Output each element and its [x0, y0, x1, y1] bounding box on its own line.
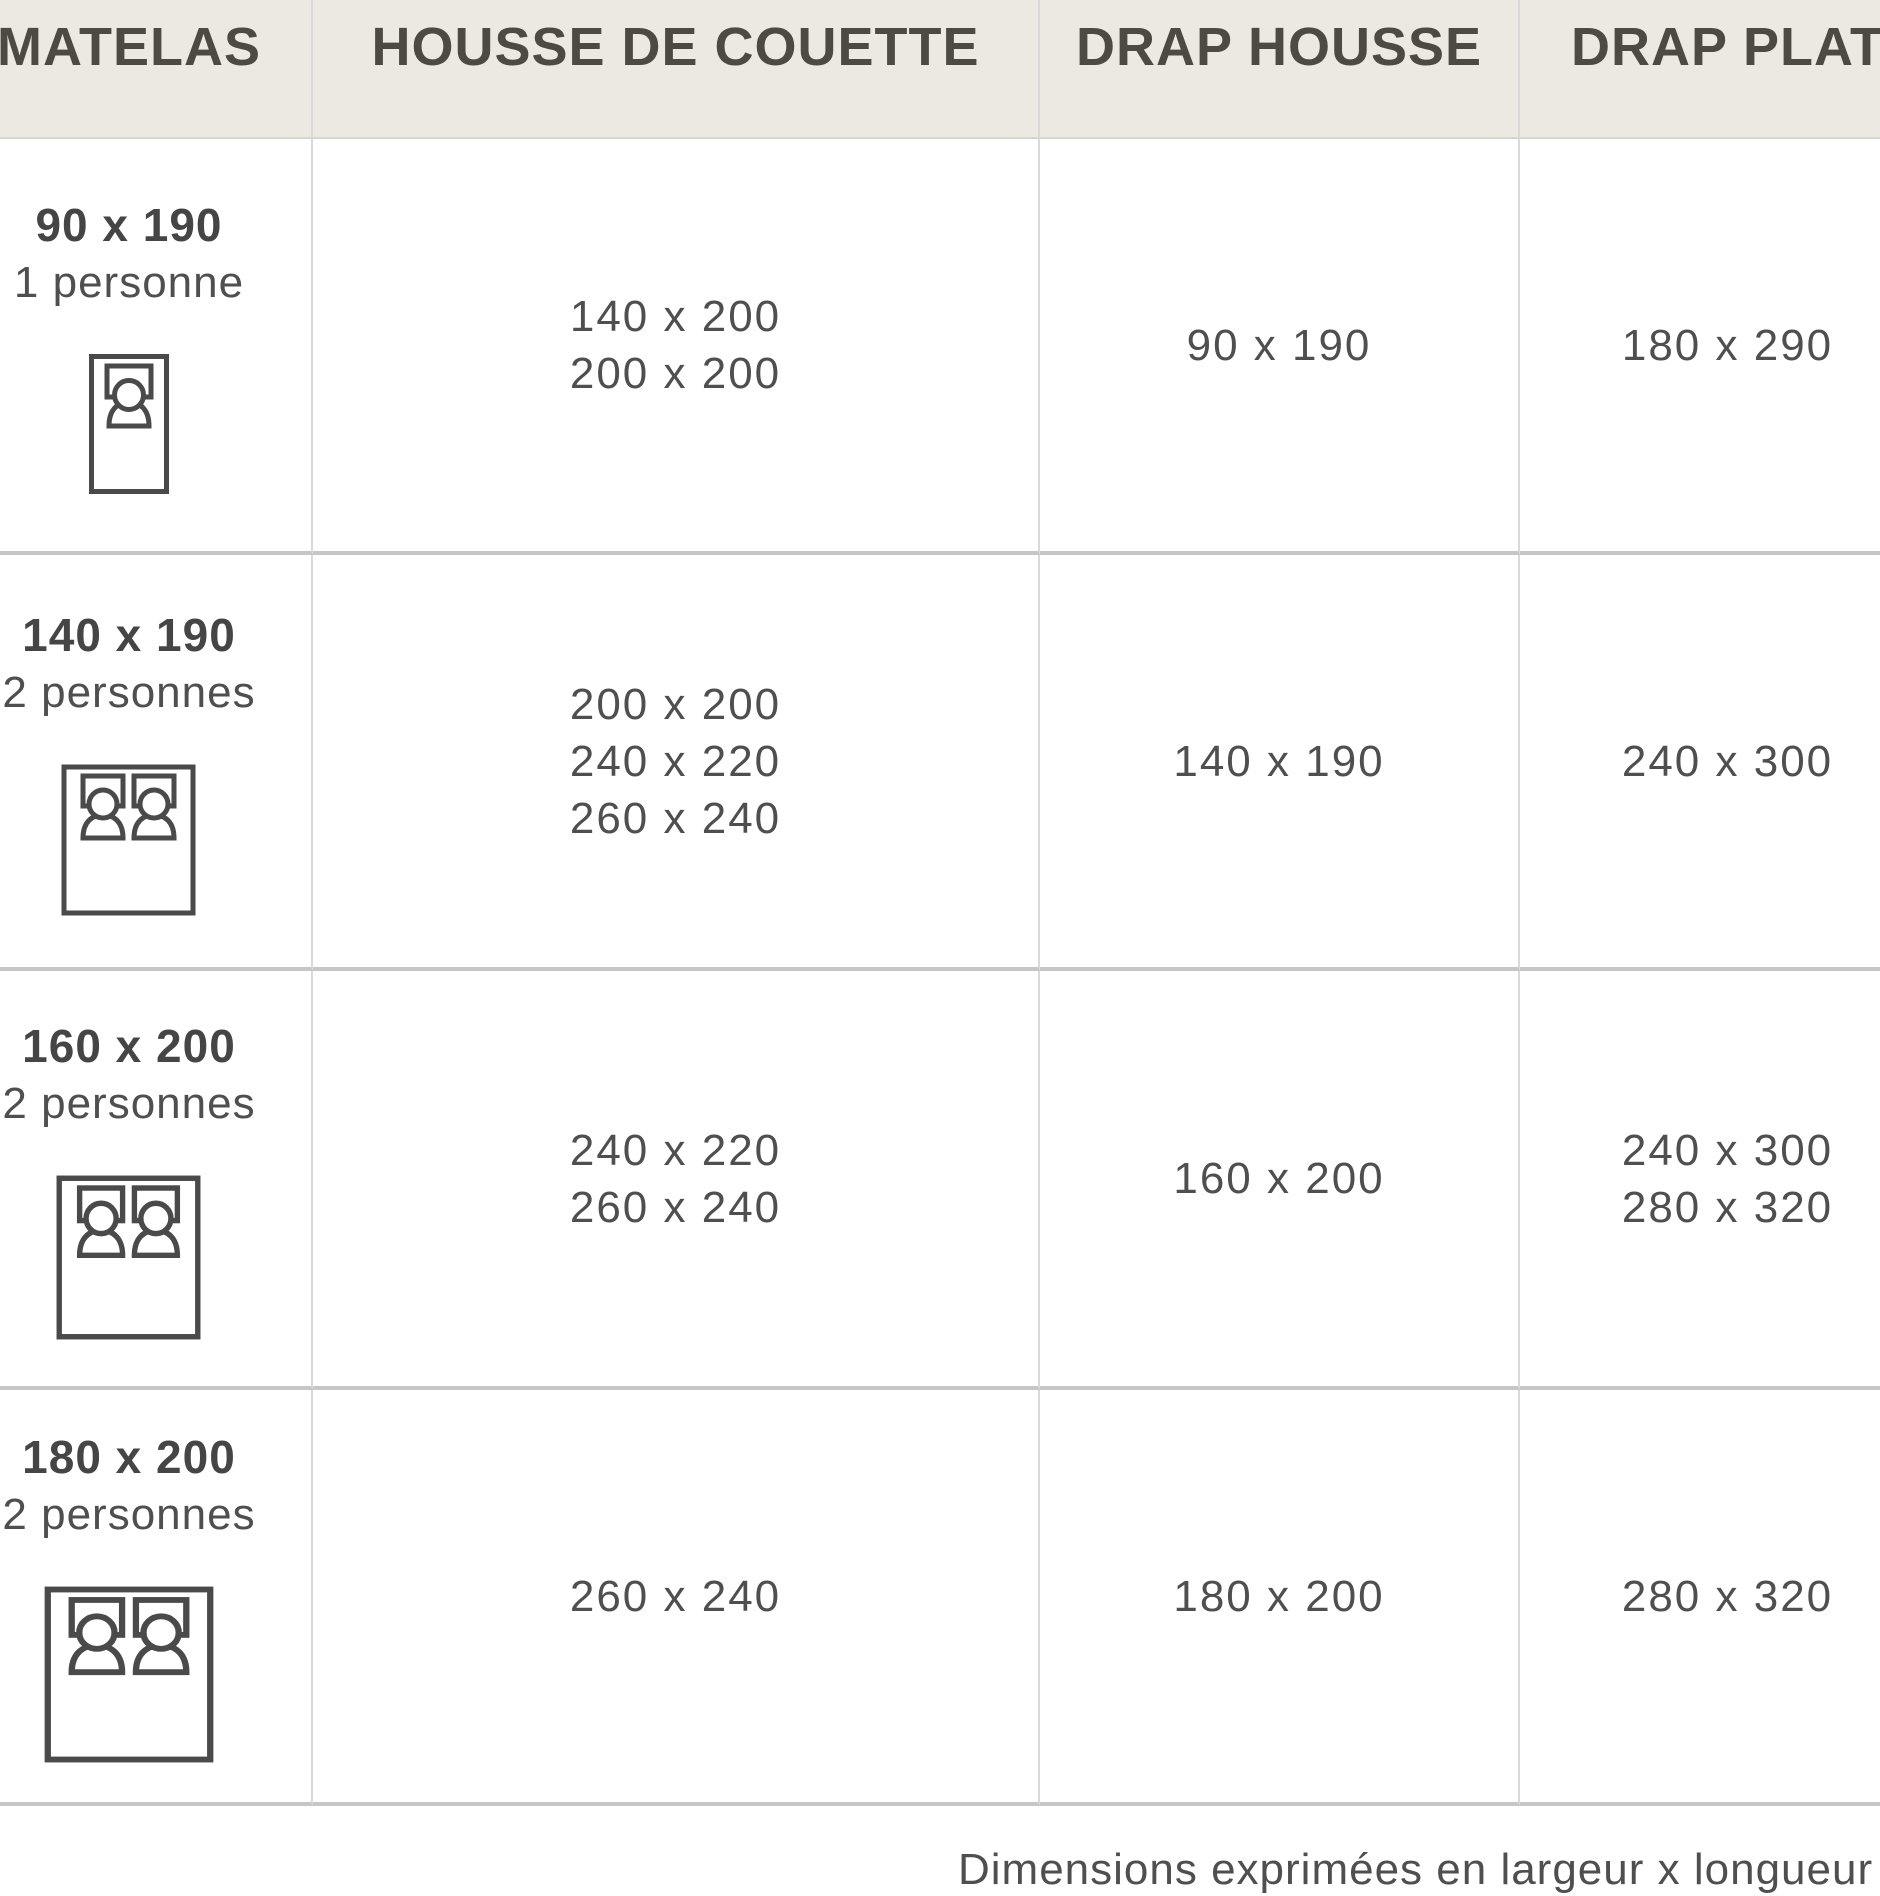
- size-value: 180 x 290: [1622, 317, 1833, 374]
- housse-de-couette-cell: 260 x 240: [313, 1390, 1040, 1806]
- size-value: 180 x 200: [1173, 1568, 1384, 1625]
- capacity-label: 2 personnes: [2, 664, 255, 722]
- drap-plat-cell: 240 x 300: [1520, 555, 1880, 971]
- cell-values: 140 x 200 200 x 200: [570, 288, 781, 402]
- drap-plat-cell: 280 x 320: [1520, 1390, 1880, 1806]
- size-value: 260 x 240: [570, 1179, 781, 1236]
- cell-values: 90 x 190: [1187, 317, 1372, 374]
- size-value: 260 x 240: [570, 1568, 781, 1625]
- cell-values: 240 x 300: [1622, 733, 1833, 790]
- housse-de-couette-cell: 200 x 200 240 x 220 260 x 240: [313, 555, 1040, 971]
- size-value: 140 x 190: [1173, 733, 1384, 790]
- dimensions-note: Dimensions exprimées en largeur x longue…: [958, 1844, 1880, 1896]
- size-value: 200 x 200: [570, 676, 781, 733]
- housse-de-couette-cell: 140 x 200 200 x 200: [313, 139, 1040, 555]
- matelas-cell: 90 x 190 1 personne: [0, 139, 313, 555]
- drap-housse-cell: 160 x 200: [1040, 971, 1520, 1390]
- drap-plat-cell: 240 x 300 280 x 320: [1520, 971, 1880, 1390]
- column-header-drap-housse: DRAP HOUSSE: [1040, 0, 1520, 139]
- column-header-matelas: MATELAS: [0, 0, 313, 139]
- size-value: 90 x 190: [1187, 317, 1372, 374]
- drap-housse-cell: 180 x 200: [1040, 1390, 1520, 1806]
- capacity-label: 2 personnes: [2, 1075, 255, 1133]
- size-value: 160 x 200: [1173, 1150, 1384, 1207]
- housse-de-couette-cell: 240 x 220 260 x 240: [313, 971, 1040, 1390]
- mattress-info: 90 x 190 1 personne: [14, 197, 244, 494]
- matelas-cell: 140 x 190 2 personnes: [0, 555, 313, 971]
- cell-values: 160 x 200: [1173, 1150, 1384, 1207]
- capacity-label: 2 personnes: [2, 1486, 255, 1544]
- drap-housse-cell: 140 x 190: [1040, 555, 1520, 971]
- cell-values: 240 x 220 260 x 240: [570, 1122, 781, 1236]
- cell-values: 260 x 240: [570, 1568, 781, 1625]
- cell-values: 280 x 320: [1622, 1568, 1833, 1625]
- double-bed-two-persons-icon: [44, 1586, 214, 1763]
- cell-values: 240 x 300 280 x 320: [1622, 1122, 1833, 1236]
- bed-linen-size-table: MATELAS HOUSSE DE COUETTE DRAP HOUSSE DR…: [0, 0, 1880, 1806]
- size-value: 240 x 300: [1622, 733, 1833, 790]
- size-value: 280 x 320: [1622, 1568, 1833, 1625]
- double-bed-two-persons-icon: [61, 764, 196, 916]
- mattress-info: 160 x 200 2 personnes: [2, 1018, 255, 1340]
- column-header-drap-plat: DRAP PLAT: [1520, 0, 1880, 139]
- matelas-cell: 180 x 200 2 personnes: [0, 1390, 313, 1806]
- size-value: 260 x 240: [570, 790, 781, 847]
- cell-values: 200 x 200 240 x 220 260 x 240: [570, 676, 781, 847]
- single-bed-one-person-icon: [89, 354, 169, 494]
- size-value: 240 x 300: [1622, 1122, 1833, 1179]
- column-header-housse-de-couette: HOUSSE DE COUETTE: [313, 0, 1040, 139]
- size-value: 140 x 200: [570, 288, 781, 345]
- drap-housse-cell: 90 x 190: [1040, 139, 1520, 555]
- mattress-size-label: 90 x 190: [35, 197, 222, 254]
- mattress-size-label: 160 x 200: [22, 1018, 236, 1075]
- matelas-cell: 160 x 200 2 personnes: [0, 971, 313, 1390]
- drap-plat-cell: 180 x 290: [1520, 139, 1880, 555]
- double-bed-two-persons-icon: [56, 1175, 201, 1340]
- cell-values: 180 x 200: [1173, 1568, 1384, 1625]
- mattress-info: 180 x 200 2 personnes: [2, 1429, 255, 1763]
- size-value: 240 x 220: [570, 733, 781, 790]
- mattress-size-label: 180 x 200: [22, 1429, 236, 1486]
- capacity-label: 1 personne: [14, 254, 244, 312]
- size-value: 240 x 220: [570, 1122, 781, 1179]
- cell-values: 140 x 190: [1173, 733, 1384, 790]
- size-value: 280 x 320: [1622, 1179, 1833, 1236]
- mattress-info: 140 x 190 2 personnes: [2, 607, 255, 916]
- mattress-size-label: 140 x 190: [22, 607, 236, 664]
- size-value: 200 x 200: [570, 345, 781, 402]
- cell-values: 180 x 290: [1622, 317, 1833, 374]
